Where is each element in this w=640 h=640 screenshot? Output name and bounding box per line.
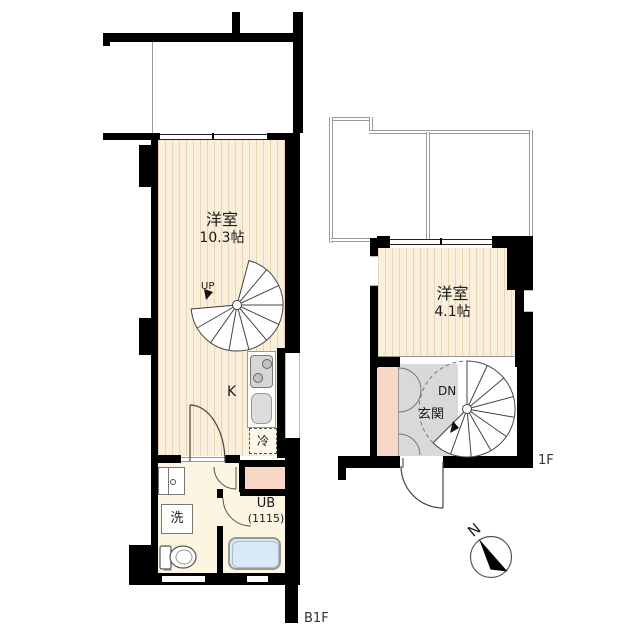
b1f-closet	[243, 466, 285, 490]
f1-right-window	[524, 290, 533, 312]
b1f-ub-top-wall	[240, 489, 285, 496]
stove	[250, 355, 273, 388]
f1-front-door	[401, 462, 443, 508]
kitchen-sink	[251, 393, 272, 424]
b1f-window-mid-tick	[212, 133, 214, 140]
b1f-closet-top-wall	[240, 460, 285, 467]
compass-north-label: N	[464, 520, 485, 542]
f1-mid-wall-right	[515, 357, 533, 367]
b1f-left-pier-2	[139, 318, 151, 355]
f1-room-size: 4.1帖	[390, 304, 515, 322]
f1-floor-label: 1F	[538, 453, 554, 469]
f1-room-name: 洋室	[390, 284, 515, 304]
b1f-bottom-vent-2	[247, 576, 268, 582]
b1f-room-top-wall-right	[267, 133, 300, 140]
b1f-void-top-wall	[103, 33, 303, 42]
b1f-kitchen-right-jamb	[277, 348, 285, 458]
f1-bottom-wall-left	[370, 456, 400, 468]
b1f-room-label: 洋室 10.3帖	[157, 210, 287, 248]
b1f-room-top-wall-left	[103, 133, 160, 140]
f1-top-window-tick	[440, 238, 442, 245]
f1-balcony-rail-top	[369, 130, 532, 134]
ub-size-text: (1115)	[240, 512, 292, 526]
washing-machine: 洗	[161, 504, 193, 534]
f1-bottom-wall-right	[443, 456, 533, 468]
refrigerator: 冷	[249, 428, 277, 454]
f1-balcony-rail-left	[329, 117, 333, 243]
b1f-void-divider-line	[152, 42, 153, 133]
entrance-label: 玄関	[418, 407, 444, 423]
f1-mid-wall-left	[370, 357, 400, 367]
b1f-bath-top-wall-a	[151, 455, 181, 463]
plan-linework	[0, 0, 640, 640]
refrigerator-label: 冷	[250, 434, 276, 449]
f1-room-label: 洋室 4.1帖	[390, 284, 515, 322]
b1f-floor-label: B1F	[304, 611, 329, 627]
b1f-room-name: 洋室	[157, 210, 287, 230]
stove-burner-1	[262, 359, 272, 369]
vanity-cabinet	[159, 468, 169, 494]
bathtub	[228, 537, 281, 570]
kitchen-label: K	[227, 384, 236, 402]
f1-door-jamb-tick	[402, 458, 404, 468]
b1f-ub-door-gap	[217, 498, 223, 526]
b1f-bottom-vent-1	[162, 576, 205, 582]
b1f-right-wall-upper	[293, 12, 303, 133]
floor-plan: 冷 洗	[0, 0, 640, 640]
b1f-ub-divider-upper	[217, 489, 223, 498]
f1-balcony-rail-top-left	[329, 117, 373, 121]
compass	[471, 537, 512, 578]
f1-right-wall-lower	[517, 367, 533, 468]
f1-left-window	[370, 256, 378, 286]
f1-closet	[377, 367, 398, 456]
vanity	[158, 467, 185, 495]
b1f-kitchen-window	[285, 353, 300, 438]
vanity-knob	[170, 479, 176, 485]
b1f-right-wall-tail	[285, 585, 298, 623]
f1-balcony-divider	[426, 132, 430, 239]
b1f-closet-left-wall	[239, 460, 245, 492]
ub-text: UB	[240, 496, 292, 512]
b1f-bath-top-wall-b	[225, 455, 240, 463]
f1-balcony-rail-right	[529, 130, 533, 238]
b1f-main-room-floor	[158, 140, 285, 355]
b1f-void-left-tick	[103, 33, 110, 46]
washer-label: 洗	[162, 511, 192, 527]
f1-bottom-wall-stub	[338, 456, 346, 480]
b1f-up-label: UP	[201, 281, 214, 294]
unit-bath-label: UB (1115)	[240, 496, 292, 526]
b1f-void-stub-wall	[232, 12, 240, 34]
b1f-washroom-threshold	[181, 457, 225, 462]
f1-dn-label: DN	[438, 384, 456, 399]
b1f-room-size: 10.3帖	[157, 230, 287, 248]
f1-closet-edge-line	[398, 367, 399, 456]
compass-needle	[479, 539, 508, 572]
f1-left-wall-lower	[370, 367, 377, 468]
bathtub-inner-rim	[232, 541, 279, 568]
b1f-left-pier-1	[139, 145, 151, 187]
stove-burner-2	[253, 373, 263, 383]
f1-top-wall-left	[377, 236, 390, 248]
b1f-left-wall	[151, 133, 158, 585]
